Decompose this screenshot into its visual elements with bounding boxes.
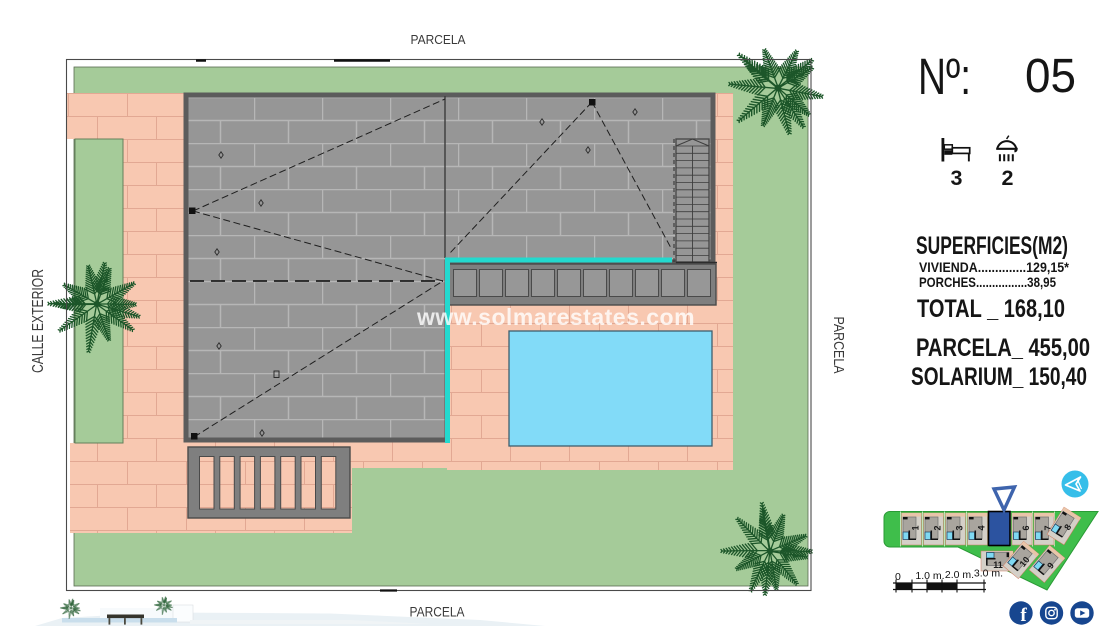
svg-text:www.solmarestates.com: www.solmarestates.com bbox=[416, 304, 695, 330]
svg-text:3: 3 bbox=[951, 166, 963, 190]
svg-text:SOLARIUM_ 150,40: SOLARIUM_ 150,40 bbox=[911, 363, 1087, 391]
svg-text:PORCHES................38,95: PORCHES................38,95 bbox=[919, 274, 1056, 290]
svg-text:PARCELA: PARCELA bbox=[411, 32, 466, 47]
svg-text:3.0 m.: 3.0 m. bbox=[974, 568, 1003, 580]
svg-text:1: 1 bbox=[910, 525, 920, 530]
svg-text:05: 05 bbox=[1025, 50, 1076, 103]
svg-text:4: 4 bbox=[976, 525, 986, 530]
svg-text:TOTAL _ 168,10: TOTAL _ 168,10 bbox=[917, 295, 1065, 323]
svg-text:PARCELA: PARCELA bbox=[410, 605, 465, 620]
svg-text:PARCELA: PARCELA bbox=[830, 317, 847, 374]
svg-text:SUPERFICIES(M2): SUPERFICIES(M2) bbox=[916, 232, 1068, 260]
svg-text:f: f bbox=[1020, 605, 1027, 626]
svg-text:3: 3 bbox=[954, 525, 964, 530]
svg-text:Nº:: Nº: bbox=[918, 48, 971, 105]
svg-text:2: 2 bbox=[932, 525, 942, 530]
svg-text:VIVIENDA..............129,15*: VIVIENDA..............129,15* bbox=[919, 259, 1069, 275]
svg-text:1.0 m.: 1.0 m. bbox=[915, 570, 944, 582]
svg-text:2: 2 bbox=[1002, 166, 1014, 190]
svg-text:6: 6 bbox=[1021, 525, 1031, 530]
svg-text:PARCELA_ 455,00: PARCELA_ 455,00 bbox=[916, 334, 1090, 362]
svg-text:2.0 m.: 2.0 m. bbox=[945, 569, 974, 581]
svg-text:CALLE EXTERIOR: CALLE EXTERIOR bbox=[30, 269, 47, 373]
